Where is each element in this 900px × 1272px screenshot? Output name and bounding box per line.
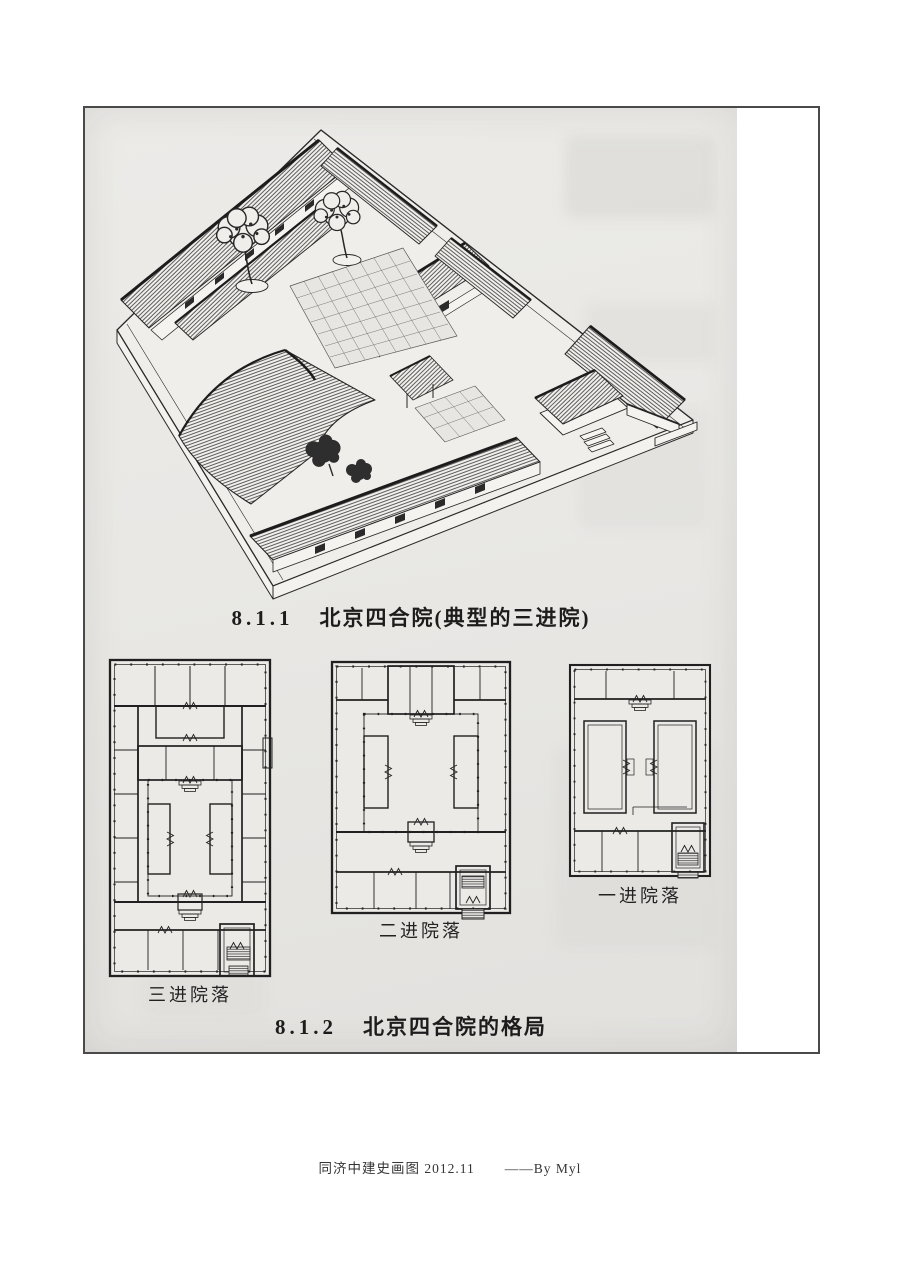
scanned-page: 8.1.1北京四合院(典型的三进院) 三进院落 二进院落 一进院落 8.1.2北… [85,108,737,1052]
caption-number: 8.1.2 [275,1015,337,1039]
caption-text: 北京四合院的格局 [363,1015,547,1039]
plan-three-courtyard [110,660,272,976]
caption-number: 8.1.1 [232,606,294,630]
scan-artwork [85,108,737,1052]
page-footer: 同济中建史画图 2012.11——By Myl [0,1157,900,1177]
caption-8-1-1: 8.1.1北京四合院(典型的三进院) [85,602,737,632]
footer-byline: ——By Myl [505,1161,582,1176]
plan-label-one-courtyard: 一进院落 [568,882,712,908]
plan-label-two-courtyard: 二进院落 [330,917,512,943]
plan-label-three-courtyard: 三进院落 [108,981,272,1007]
figure-frame: 8.1.1北京四合院(典型的三进院) 三进院落 二进院落 一进院落 8.1.2北… [83,106,820,1054]
footer-source: 同济中建史画图 2012.11 [319,1161,475,1176]
caption-text: 北京四合院(典型的三进院) [320,606,591,630]
page: 8.1.1北京四合院(典型的三进院) 三进院落 二进院落 一进院落 8.1.2北… [0,0,900,1272]
plan-one-courtyard [570,665,710,878]
plan-two-courtyard [332,662,510,919]
caption-8-1-2: 8.1.2北京四合院的格局 [85,1011,737,1041]
